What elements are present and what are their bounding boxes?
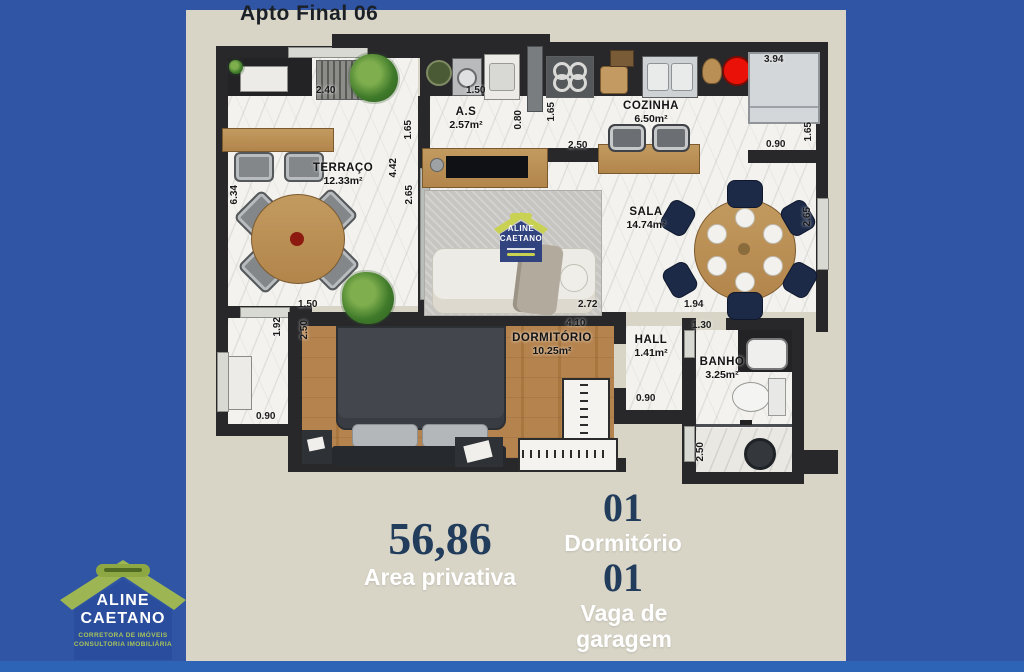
- agency-tagline-1: CORRETORA DE IMÓVEIS: [52, 632, 194, 639]
- small-box: [610, 50, 634, 67]
- stool: [652, 124, 690, 152]
- pillow: [352, 424, 418, 448]
- private-area-value: 56,86: [368, 512, 512, 565]
- plate-icon: [763, 256, 783, 276]
- bottom-strip: [0, 661, 1024, 672]
- dining-chair: [727, 180, 763, 208]
- door-frame-banho-top: [684, 330, 695, 358]
- bath-sink-icon: [746, 338, 788, 370]
- bedroom-count-label: Dormitório: [558, 530, 688, 556]
- wardrobe-rail: [522, 450, 610, 458]
- dim-label: 1.50: [466, 85, 485, 96]
- cutting-board-icon: [600, 66, 628, 94]
- dim-label: 1.30: [692, 320, 711, 331]
- dim-label: 6.34: [229, 185, 240, 204]
- dim-label: 2.50: [299, 320, 310, 339]
- ottoman: [560, 264, 588, 292]
- dim-label: 0.80: [513, 110, 524, 129]
- dim-label: 1.50: [298, 299, 317, 310]
- watermark-name-line2: CAETANO: [492, 234, 550, 243]
- dim-label: 1.92: [272, 317, 283, 336]
- plant-icon: [350, 54, 398, 102]
- toilet-tank: [768, 378, 786, 416]
- wall-kitchen-step: [748, 150, 828, 163]
- plate-icon: [707, 256, 727, 276]
- partition-handle: [740, 420, 752, 425]
- room-label-dormitorio: DORMITÓRIO 10.25m²: [500, 332, 604, 357]
- dim-label: 1.65: [546, 102, 557, 121]
- sink-basin: [647, 63, 669, 91]
- door-frame-banho-bottom: [684, 426, 695, 462]
- laundry-basin: [489, 63, 515, 91]
- wall-banho-bottom: [682, 472, 804, 484]
- agency-name-line1: ALINE: [52, 592, 194, 610]
- plant-icon: [229, 60, 243, 74]
- decor-icon: [430, 158, 444, 172]
- shower-drain: [744, 438, 776, 470]
- plan-title: Apto Final 06: [240, 2, 460, 26]
- dim-label: 1.94: [684, 299, 703, 310]
- stove-icon: [546, 56, 594, 98]
- dim-label: 2.40: [316, 85, 335, 96]
- ac-unit: [228, 356, 252, 410]
- dim-label: 2.72: [578, 299, 597, 310]
- dim-label: 2.65: [404, 185, 415, 204]
- agency-logo: ALINE CAETANO CORRETORA DE IMÓVEIS CONSU…: [52, 550, 194, 662]
- table-centerpiece: [738, 243, 750, 255]
- room-label-banho: BANHO 3.25m²: [696, 356, 748, 381]
- wall-dorm-hall-lower: [614, 388, 626, 414]
- plate-icon: [707, 224, 727, 244]
- watermark-name-line1: ALINE: [492, 224, 550, 233]
- dining-chair: [727, 292, 763, 320]
- toilet-bowl: [732, 382, 770, 412]
- dim-label: 2.50: [695, 442, 706, 461]
- dim-label: 1.65: [803, 122, 814, 141]
- table-centerpiece: [290, 232, 304, 246]
- burner: [569, 74, 587, 92]
- plate-icon: [735, 272, 755, 292]
- laundry-sink-icon: [484, 54, 520, 100]
- garage-count-value: 01: [586, 554, 660, 601]
- book-icon: [307, 436, 325, 451]
- room-label-hall: HALL 1.41m²: [622, 334, 680, 359]
- dim-label: 0.90: [256, 411, 275, 422]
- window-top-terrace: [288, 47, 368, 58]
- plate-icon: [735, 208, 755, 228]
- room-label-terraco: TERRAÇO 12.33m²: [300, 162, 386, 187]
- dim-label: 0.90: [766, 139, 785, 150]
- dim-label: 1.65: [403, 120, 414, 139]
- agency-name-line2: CAETANO: [52, 610, 194, 628]
- magazine-icon: [463, 440, 492, 463]
- room-label-as: A.S 2.57m²: [438, 106, 494, 131]
- wall-right-tab: [792, 450, 838, 474]
- bar-chair: [234, 152, 274, 182]
- wardrobe: [518, 438, 618, 472]
- fridge-icon: [748, 52, 820, 124]
- sink-basin: [671, 63, 693, 91]
- dim-label: 0.90: [636, 393, 655, 404]
- terrace-sink: [240, 66, 288, 92]
- bar-table: [222, 128, 334, 152]
- nightstand: [302, 430, 332, 464]
- agency-tagline-2: CONSULTORIA IMOBILIÁRIA: [52, 641, 194, 648]
- decor-plate-icon: [426, 60, 452, 86]
- private-area-label: Area privativa: [350, 564, 530, 590]
- wardrobe: [562, 378, 610, 442]
- room-label-sala: SALA 14.74m²: [608, 206, 684, 231]
- room-label-cozinha: COZINHA 6.50m²: [612, 100, 690, 125]
- dim-label: 4.10: [566, 318, 585, 329]
- window-right: [817, 198, 829, 270]
- wall-corridor-bottom: [216, 424, 302, 436]
- watermark-logo: ALINE CAETANO: [492, 208, 550, 264]
- bed-duvet: [336, 326, 506, 430]
- plant-icon: [342, 272, 394, 324]
- nightstand: [455, 437, 503, 467]
- garage-count-label: Vaga de garagem: [566, 600, 682, 653]
- bedroom-count-value: 01: [586, 484, 660, 531]
- dim-label: 2.50: [568, 140, 587, 151]
- tv-icon: [446, 156, 528, 178]
- wardrobe-rail: [580, 382, 588, 434]
- decor-icon: [702, 58, 722, 84]
- fridge-line: [750, 106, 818, 108]
- column: [527, 46, 543, 112]
- plate-icon: [763, 224, 783, 244]
- dim-label: 4.42: [388, 158, 399, 177]
- kitchen-sink-icon: [642, 56, 698, 98]
- dim-label: 2.65: [802, 207, 813, 226]
- wall-hall-bottom: [614, 410, 696, 424]
- stool: [608, 124, 646, 152]
- dim-label: 3.94: [764, 54, 783, 65]
